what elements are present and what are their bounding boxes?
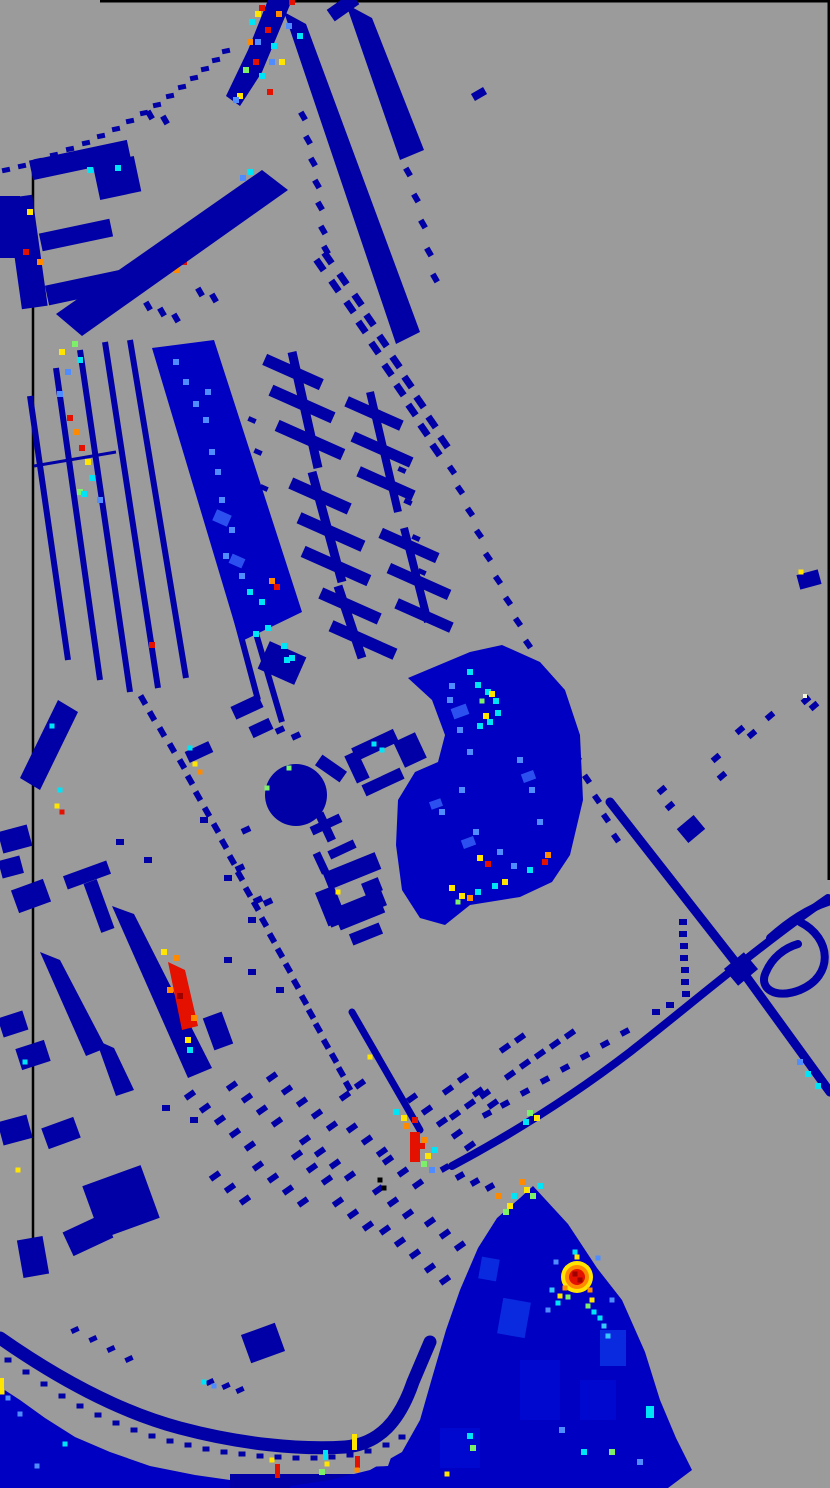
junction-red-bar bbox=[410, 1132, 420, 1162]
arc-pix bbox=[803, 694, 807, 698]
junction2-lblue bbox=[429, 1167, 435, 1173]
building-five-pix bbox=[336, 890, 341, 895]
bar-a-cyan bbox=[187, 1047, 193, 1053]
gravel-hot bbox=[269, 578, 275, 584]
junction-noise-green bbox=[243, 67, 249, 73]
inner-road-pix3 bbox=[198, 770, 203, 775]
shore-streak-red bbox=[355, 1456, 360, 1468]
water-tone bbox=[580, 1380, 616, 1420]
gravel-hot bbox=[274, 584, 280, 590]
bar-a-darkred bbox=[177, 993, 183, 999]
shore-streak-yellow bbox=[352, 1434, 357, 1450]
hotspot-core bbox=[569, 1269, 585, 1285]
strip-noise-orange bbox=[73, 429, 79, 435]
detection-heatmap-canvas bbox=[0, 0, 830, 1488]
sw-bar-pix3 bbox=[55, 804, 60, 809]
top-border bbox=[100, 0, 830, 3]
water-cyan-dash bbox=[646, 1406, 654, 1418]
bar-a-yellow bbox=[185, 1037, 191, 1043]
shore-streak-cyan bbox=[323, 1450, 328, 1460]
inner-road-pix2 bbox=[193, 762, 198, 767]
water-tone bbox=[520, 1360, 560, 1420]
shore-streak-red2 bbox=[275, 1464, 280, 1478]
cross-road-pix bbox=[368, 1055, 373, 1060]
bar-noise bbox=[240, 175, 246, 181]
highway-pix-green bbox=[527, 1110, 533, 1116]
shore-pix-orange bbox=[355, 1468, 360, 1473]
detection-map-figure bbox=[0, 0, 830, 1488]
water-tone bbox=[600, 1330, 626, 1366]
roadside-blob-pix bbox=[799, 570, 804, 575]
inner-road-pix bbox=[188, 746, 193, 751]
water-tone bbox=[478, 1257, 500, 1282]
highway-pix-yellow bbox=[534, 1115, 540, 1121]
junction2-green bbox=[421, 1161, 427, 1167]
highway-pix-lblue bbox=[797, 1059, 803, 1065]
sw-bar-pix2 bbox=[60, 810, 65, 815]
